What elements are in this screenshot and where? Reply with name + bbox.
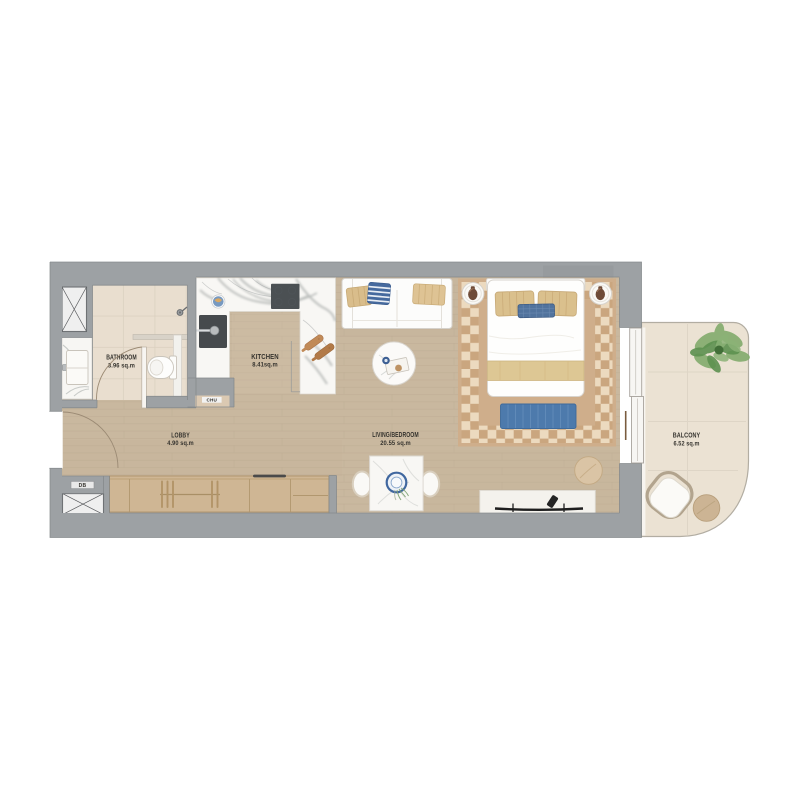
- svg-text:BALCONY: BALCONY: [673, 431, 701, 440]
- svg-text:4.90 sq.m: 4.90 sq.m: [167, 440, 194, 447]
- svg-text:LIVING/BEDROOM: LIVING/BEDROOM: [372, 430, 419, 439]
- svg-text:20.55 sq.m: 20.55 sq.m: [380, 440, 411, 447]
- svg-text:DB: DB: [79, 483, 87, 489]
- svg-text:CHU: CHU: [207, 398, 218, 403]
- svg-text:6.52 sq.m: 6.52 sq.m: [674, 440, 700, 447]
- svg-text:KITCHEN: KITCHEN: [251, 352, 279, 361]
- svg-text:3.96 sq.m: 3.96 sq.m: [108, 362, 135, 369]
- svg-text:8.41sq.m: 8.41sq.m: [252, 361, 278, 368]
- svg-text:LOBBY: LOBBY: [171, 431, 190, 440]
